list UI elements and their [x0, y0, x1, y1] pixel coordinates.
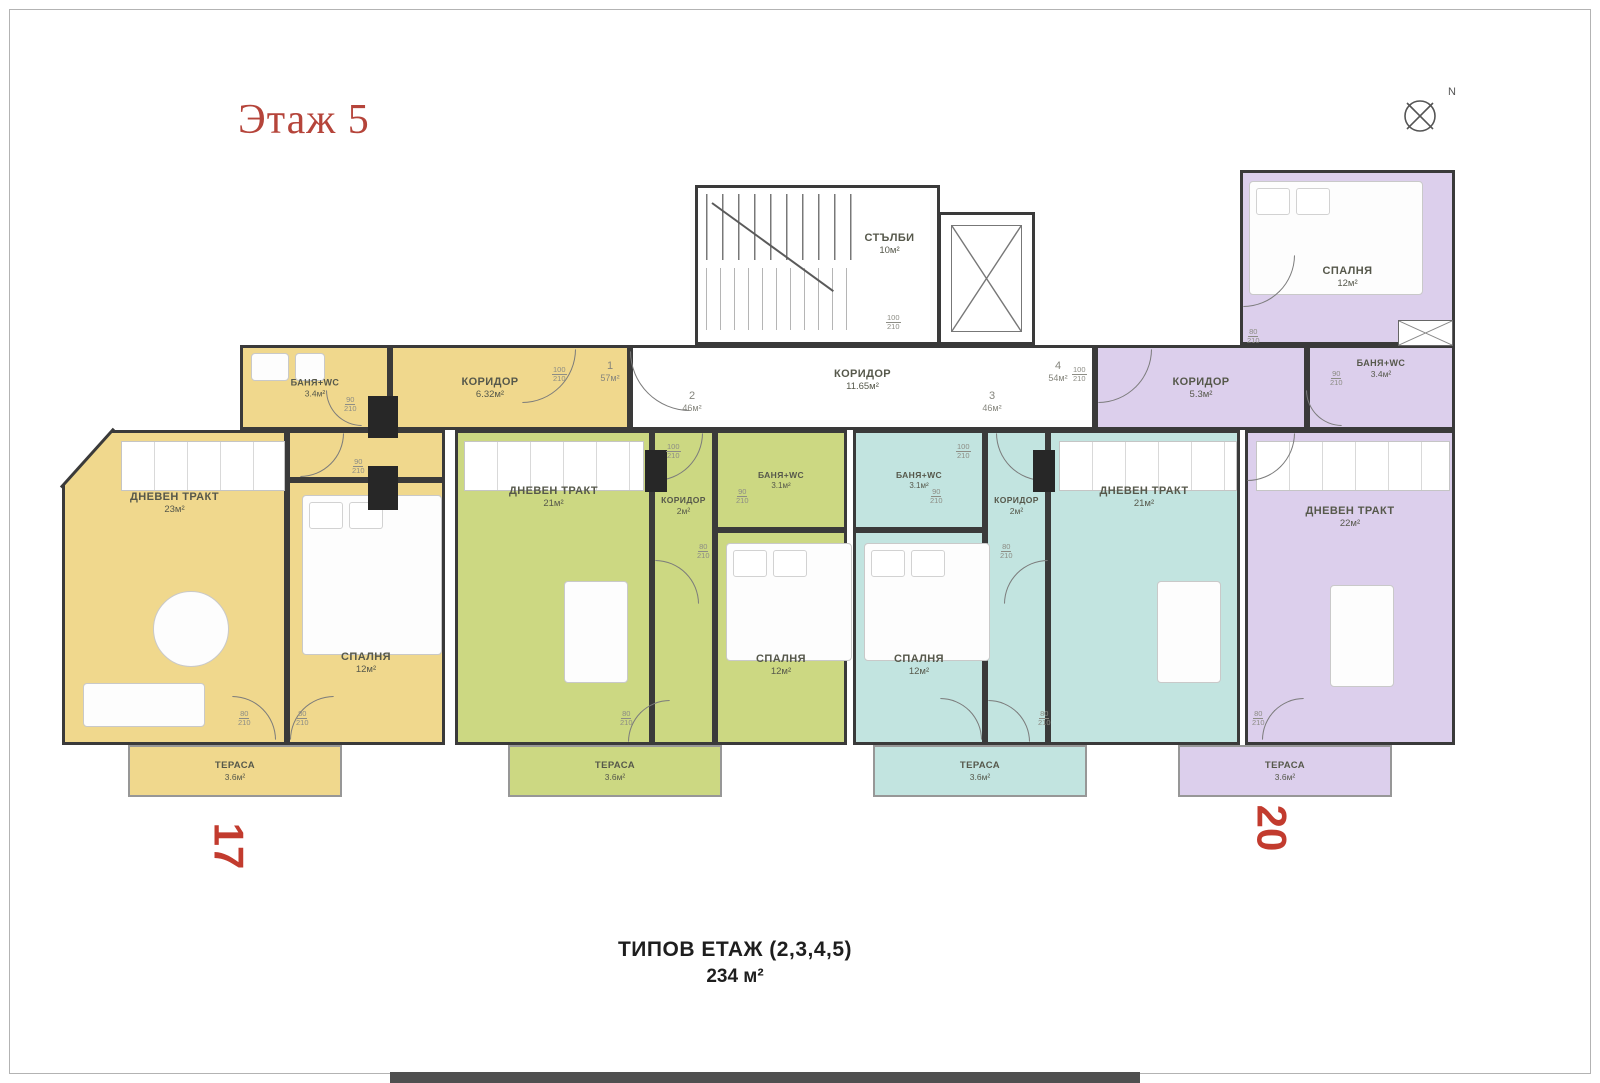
- room-name: БАНЯ+WC: [1310, 358, 1452, 368]
- door-height: 210: [957, 452, 970, 460]
- floor-caption: ТИПОВ ЕТАЖ (2,3,4,5) 234 м²: [510, 938, 960, 988]
- room-name: КОРИДОР: [655, 495, 712, 505]
- wardrobe-box: [1398, 320, 1453, 346]
- room-name: СТЪЛБИ: [846, 232, 933, 244]
- room-name: ТЕРАСА: [1180, 760, 1390, 771]
- north-indicator: N: [1398, 92, 1458, 148]
- door-height: 210: [1330, 379, 1343, 387]
- bed-furniture: [864, 543, 990, 661]
- room-area: 2м²: [655, 506, 712, 516]
- dining-table: [1157, 581, 1221, 683]
- wardrobe-cross-icon: [1399, 321, 1452, 345]
- door-height: 210: [667, 452, 680, 460]
- sofa-furniture: [83, 683, 205, 727]
- door-size-label: 100210: [886, 314, 901, 332]
- pillow: [733, 550, 767, 577]
- door-height: 210: [620, 719, 633, 727]
- room-apt2-terrace: ТЕРАСА 3.6м²: [508, 745, 722, 797]
- room-apt1-living: ДНЕВЕН ТРАКТ 23м²: [62, 430, 287, 745]
- door-size-label: 100210: [666, 443, 681, 461]
- door-size-label: 80210: [697, 543, 710, 561]
- bath-fixture: [295, 353, 325, 381]
- room-name: КОРИДОР: [353, 376, 627, 388]
- caption-line2: 234 м²: [510, 966, 960, 988]
- elevator-shaft: [938, 212, 1035, 345]
- apartment-number: 3: [970, 390, 1014, 403]
- room-label: БАНЯ+WC 3.1м²: [718, 470, 844, 490]
- door-height: 210: [1038, 719, 1051, 727]
- room-label: СТЪЛБИ 10м²: [846, 232, 933, 256]
- room-name: ТЕРАСА: [510, 760, 720, 771]
- room-name: БАНЯ+WC: [718, 470, 844, 480]
- room-area: 10м²: [846, 245, 933, 256]
- door-size-label: 80210: [296, 710, 309, 728]
- apartment-area: 46м²: [670, 403, 714, 414]
- apartment-1-marker: 1 57м²: [588, 360, 632, 384]
- door-height: 210: [1000, 552, 1013, 560]
- door-height: 210: [238, 719, 251, 727]
- apartment-area: 46м²: [970, 403, 1014, 414]
- door-size-label: 100210: [1072, 366, 1087, 384]
- room-name: ТЕРАСА: [130, 760, 340, 771]
- room-apt1-terrace: ТЕРАСА 3.6м²: [128, 745, 342, 797]
- room-label: ДНЕВЕН ТРАКТ 23м²: [65, 491, 284, 515]
- door-size-label: 80210: [1252, 710, 1265, 728]
- bed-furniture: [726, 543, 852, 661]
- door-size-label: 90210: [352, 458, 365, 476]
- room-area: 12м²: [718, 666, 844, 677]
- room-area: 3.6м²: [130, 772, 340, 782]
- room-apt4-living: ДНЕВЕН ТРАКТ 22м²: [1245, 430, 1455, 745]
- elevator-cross-icon: [952, 226, 1021, 331]
- room-area: 21м²: [1051, 498, 1237, 509]
- room-area: 3.6м²: [875, 772, 1085, 782]
- bath-fixture: [251, 353, 289, 381]
- room-area: 2м²: [988, 506, 1045, 516]
- door-height: 210: [697, 552, 710, 560]
- room-label: КОРИДОР 11.65м²: [633, 368, 1092, 392]
- door-size-label: 80210: [238, 710, 251, 728]
- room-main-corridor: КОРИДОР 11.65м²: [630, 345, 1095, 430]
- floor-title: Этаж 5: [238, 96, 370, 144]
- room-label: БАНЯ+WC 3.1м²: [856, 470, 982, 490]
- door-height: 210: [1247, 337, 1260, 345]
- door-size-label: 80210: [1038, 710, 1051, 728]
- door-height: 210: [352, 467, 365, 475]
- room-apt3-living: ДНЕВЕН ТРАКТ 21м²: [1048, 430, 1240, 745]
- north-label: N: [1448, 86, 1456, 98]
- stair-treads-lower: [706, 268, 856, 330]
- door-size-label: 100210: [956, 443, 971, 461]
- door-height: 210: [887, 323, 900, 331]
- room-area: 21м²: [458, 498, 649, 509]
- plot-number-17: 17: [204, 823, 252, 870]
- dining-table: [1330, 585, 1394, 687]
- apartment-number: 2: [670, 390, 714, 403]
- room-name: ТЕРАСА: [875, 760, 1085, 771]
- room-stairs: СТЪЛБИ 10м²: [695, 185, 940, 345]
- caption-line1: ТИПОВ ЕТАЖ (2,3,4,5): [510, 938, 960, 962]
- kitchen-counter: [1059, 441, 1237, 491]
- pillow: [1256, 188, 1290, 215]
- room-area: 22м²: [1248, 518, 1452, 529]
- vent-shaft: [1033, 450, 1055, 492]
- room-label: ТЕРАСА 3.6м²: [1180, 760, 1390, 782]
- dining-table: [564, 581, 628, 683]
- room-area: 3.1м²: [856, 481, 982, 490]
- room-area: 3.6м²: [510, 772, 720, 782]
- room-area: 3.6м²: [1180, 772, 1390, 782]
- pillow: [309, 502, 343, 529]
- room-area: 12м²: [856, 666, 982, 677]
- room-area: 12м²: [290, 664, 442, 675]
- door-height: 210: [553, 375, 566, 383]
- pillow: [1296, 188, 1330, 215]
- plot-number-20: 20: [1247, 805, 1295, 852]
- room-label: КОРИДОР 2м²: [988, 495, 1045, 516]
- pillow: [911, 550, 945, 577]
- door-height: 210: [1252, 719, 1265, 727]
- door-height: 210: [296, 719, 309, 727]
- room-name: БАНЯ+WC: [856, 470, 982, 480]
- room-label: ТЕРАСА 3.6м²: [875, 760, 1085, 782]
- room-name: КОРИДОР: [633, 368, 1092, 380]
- apartment-area: 57м²: [588, 373, 632, 384]
- apartment-3-marker: 3 46м²: [970, 390, 1014, 414]
- room-label: КОРИДОР 2м²: [655, 495, 712, 516]
- room-apt2-bedroom: СПАЛНЯ 12м²: [715, 530, 847, 745]
- door-size-label: 90210: [344, 396, 357, 414]
- room-area: 3.4м²: [243, 388, 387, 398]
- compass-icon: [1398, 92, 1444, 138]
- door-size-label: 90210: [930, 488, 943, 506]
- floor-plan-page: Этаж 5 N СТЪЛБИ 10м² СПАЛНЯ 12м²: [0, 0, 1600, 1083]
- room-area: 23м²: [65, 504, 284, 515]
- room-apt3-terrace: ТЕРАСА 3.6м²: [873, 745, 1087, 797]
- room-apt2-living: ДНЕВЕН ТРАКТ 21м²: [455, 430, 652, 745]
- door-size-label: 80210: [620, 710, 633, 728]
- door-size-label: 80210: [1247, 328, 1260, 346]
- vent-shaft: [368, 466, 398, 510]
- room-label: ДНЕВЕН ТРАКТ 22м²: [1248, 505, 1452, 529]
- stair-treads-upper: [706, 194, 856, 260]
- room-apt1-corridor: КОРИДОР 6.32м²: [390, 345, 630, 430]
- door-size-label: 90210: [736, 488, 749, 506]
- room-apt2-bath: БАНЯ+WC 3.1м²: [715, 430, 847, 530]
- bed-furniture: [302, 495, 442, 655]
- apartment-number: 1: [588, 360, 632, 373]
- vent-shaft: [645, 450, 667, 492]
- apartment-2-marker: 2 46м²: [670, 390, 714, 414]
- vent-shaft: [368, 396, 398, 438]
- door-size-label: 90210: [1330, 370, 1343, 388]
- door-height: 210: [1073, 375, 1086, 383]
- kitchen-counter: [464, 441, 644, 491]
- bottom-crop-bar: [390, 1072, 1140, 1083]
- door-height: 210: [930, 497, 943, 505]
- room-name: ДНЕВЕН ТРАКТ: [1248, 505, 1452, 517]
- room-apt4-terrace: ТЕРАСА 3.6м²: [1178, 745, 1392, 797]
- room-label: ТЕРАСА 3.6м²: [130, 760, 340, 782]
- room-label: ТЕРАСА 3.6м²: [510, 760, 720, 782]
- pillow: [871, 550, 905, 577]
- door-height: 210: [344, 405, 357, 413]
- room-name: КОРИДОР: [988, 495, 1045, 505]
- room-name: ДНЕВЕН ТРАКТ: [65, 491, 284, 503]
- kitchen-counter: [121, 441, 285, 491]
- dining-table: [153, 591, 229, 667]
- door-size-label: 80210: [1000, 543, 1013, 561]
- pillow: [773, 550, 807, 577]
- door-size-label: 100210: [552, 366, 567, 384]
- door-height: 210: [736, 497, 749, 505]
